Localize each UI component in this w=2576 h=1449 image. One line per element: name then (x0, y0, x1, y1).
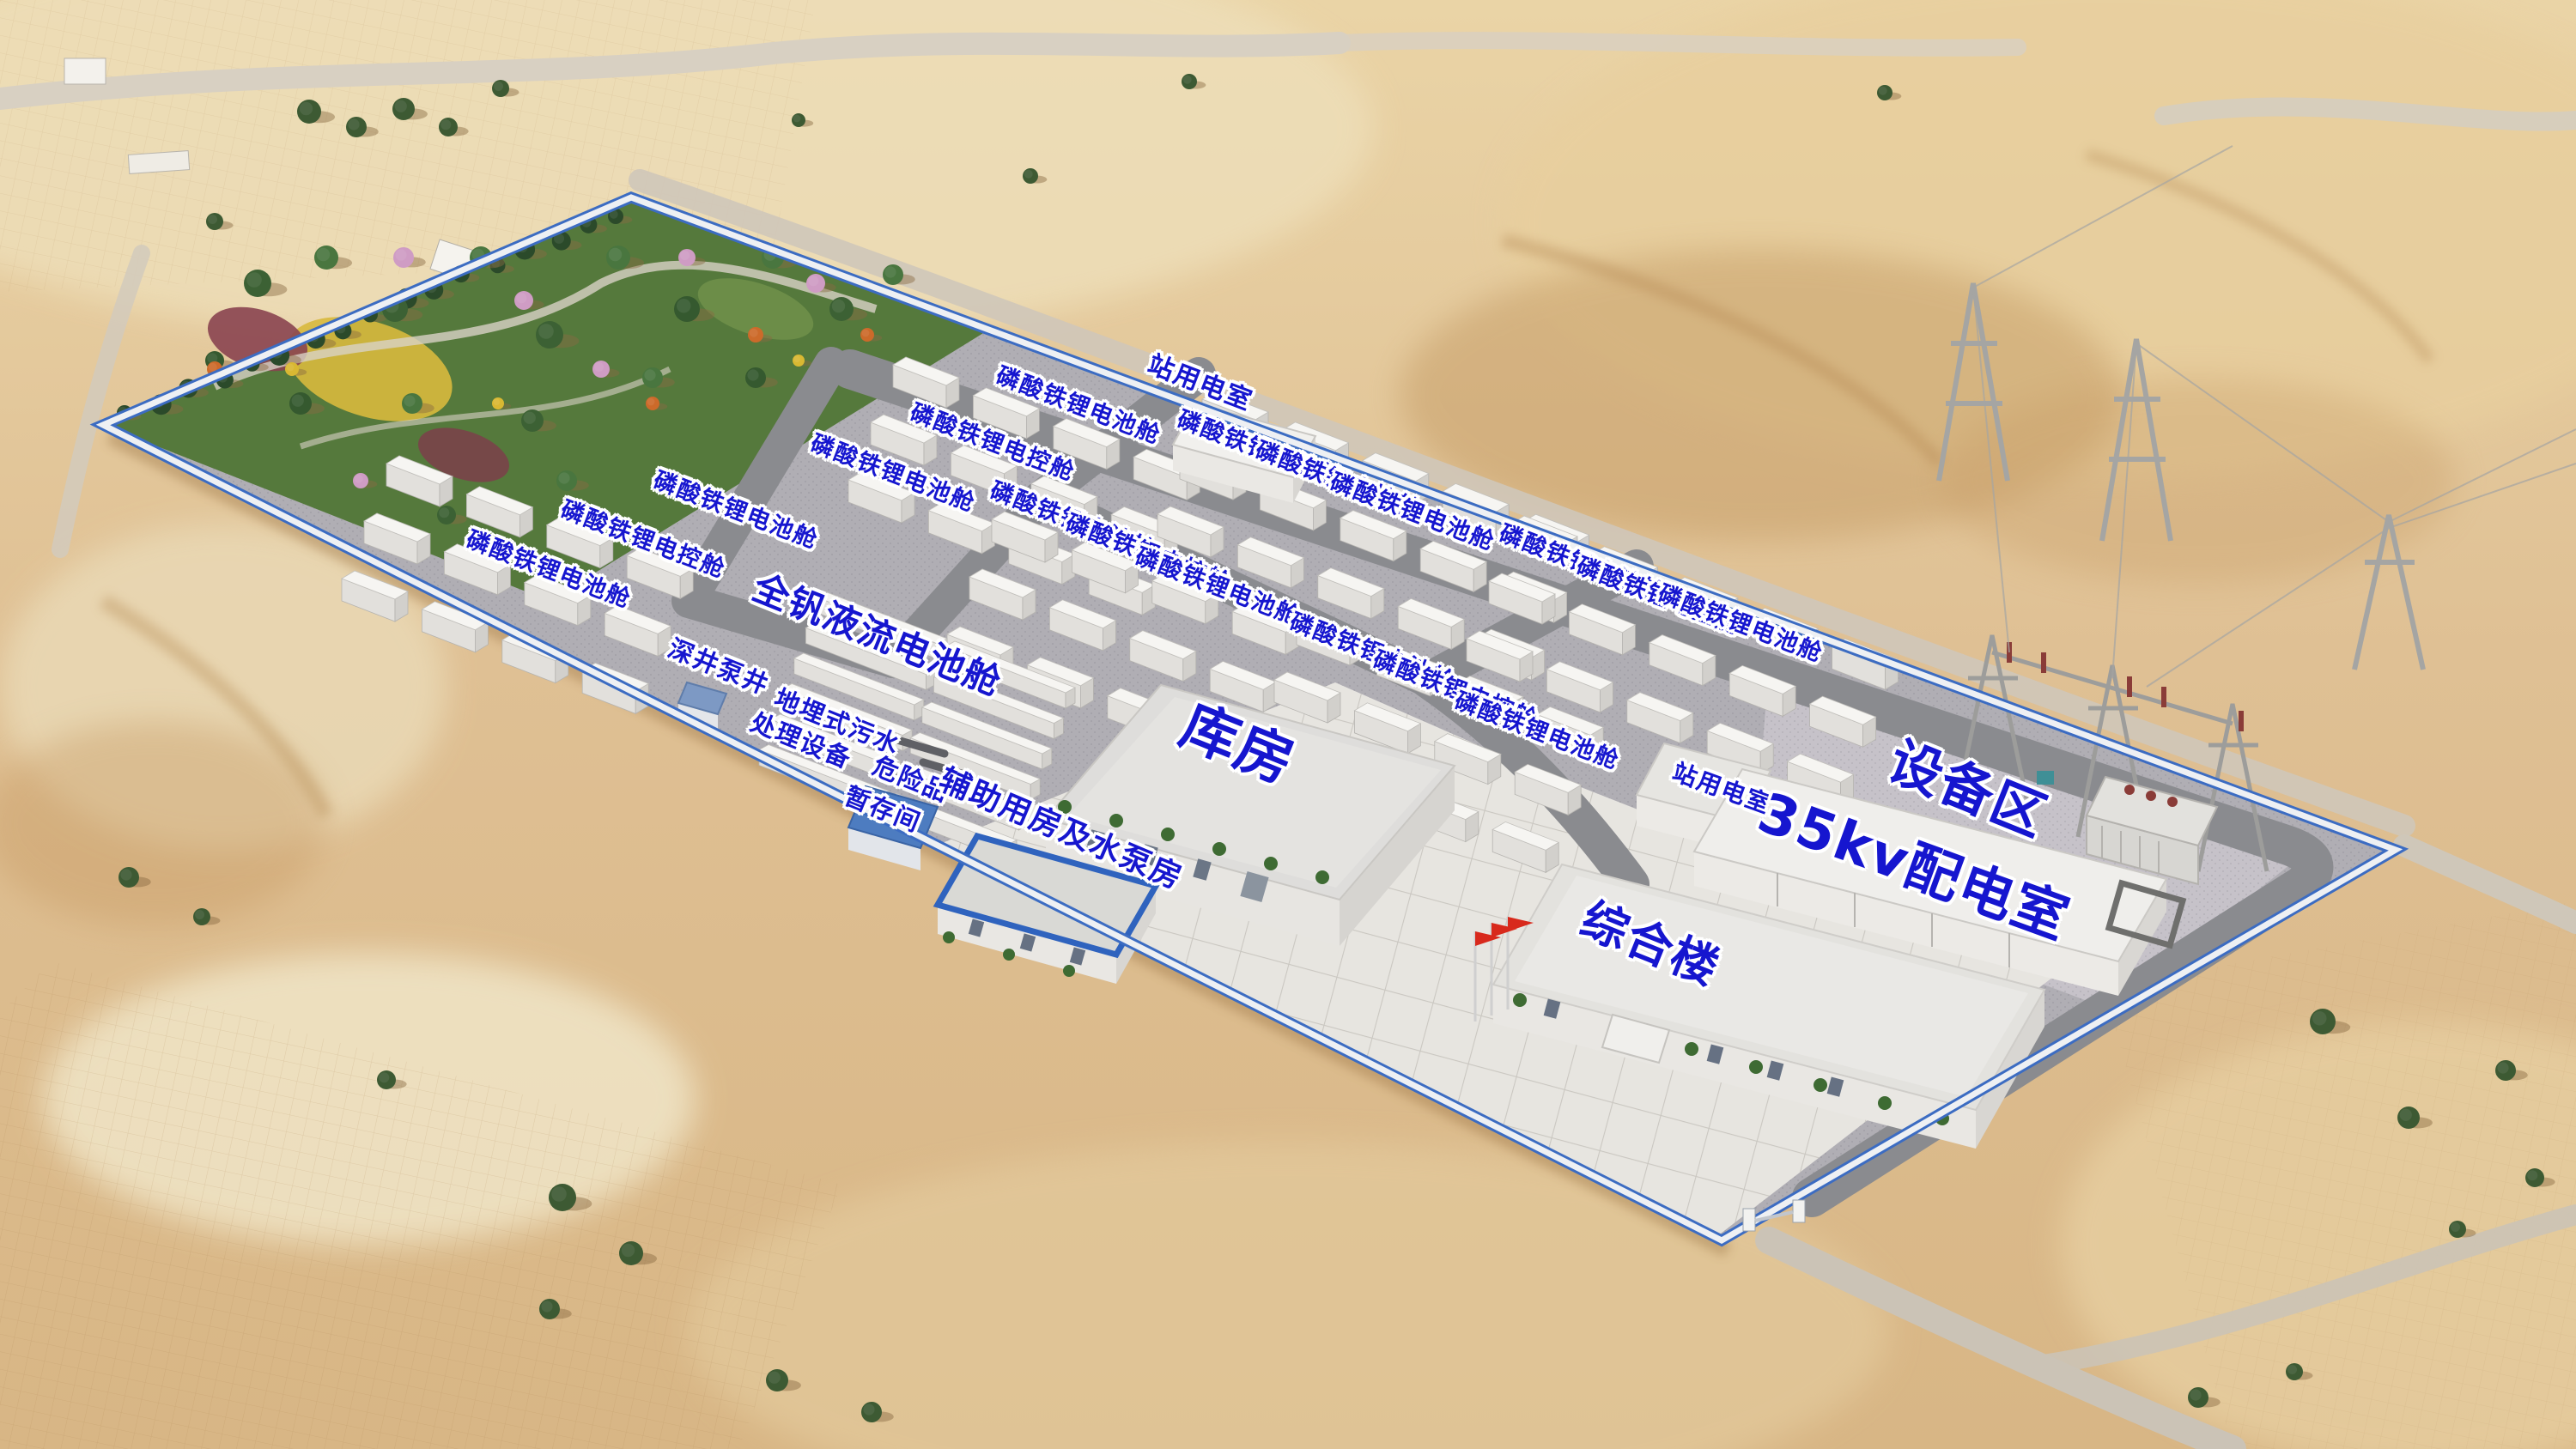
aerial-site-render: 磷酸铁锂电池舱磷酸铁锂电控舱磷酸铁锂电池舱磷酸铁锂电池舱磷酸铁锂电控舱磷酸铁锂电… (0, 0, 2576, 1449)
terrain-svg (0, 0, 2576, 1449)
